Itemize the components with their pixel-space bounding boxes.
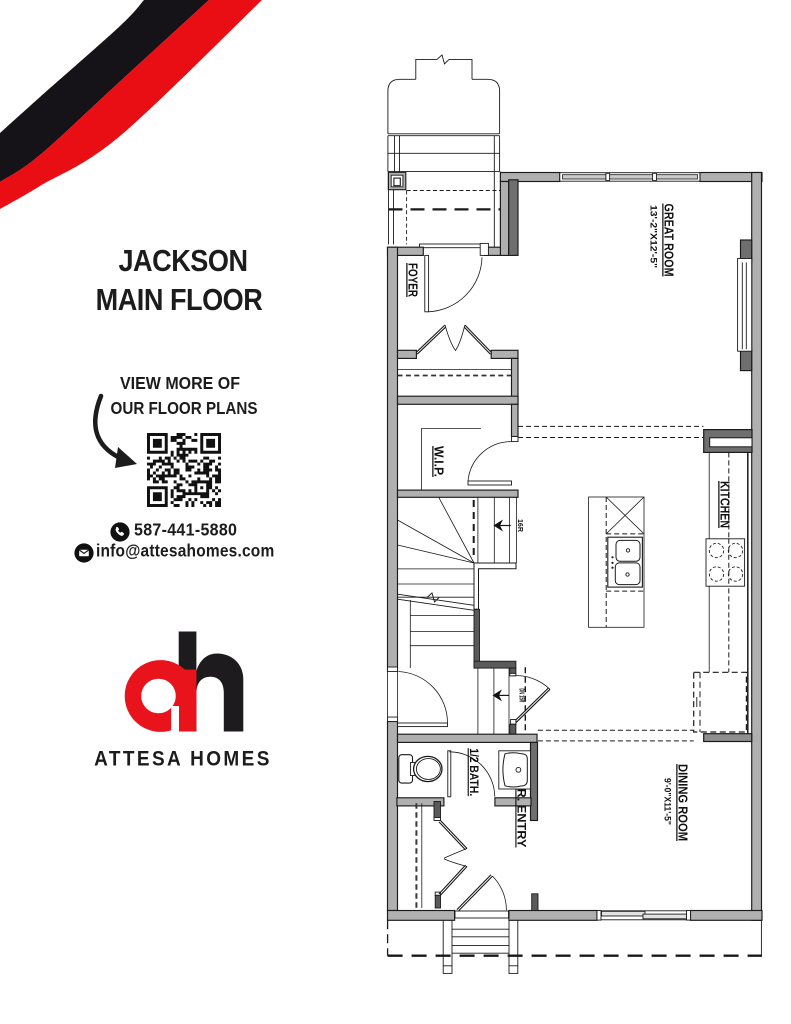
svg-text:DN 15R: DN 15R bbox=[517, 688, 524, 702]
svg-text:R. ENTRY: R. ENTRY bbox=[515, 789, 527, 848]
svg-text:16R: 16R bbox=[516, 519, 523, 532]
svg-text:9'-0"X11'-5": 9'-0"X11'-5" bbox=[662, 778, 673, 825]
svg-text:1/2 BATH.: 1/2 BATH. bbox=[467, 748, 479, 796]
svg-text:13'-2"X12'-5": 13'-2"X12'-5" bbox=[648, 205, 659, 268]
svg-text:W.I.P.: W.I.P. bbox=[432, 446, 446, 477]
svg-text:FOYER: FOYER bbox=[406, 263, 420, 297]
svg-text:DINING ROOM: DINING ROOM bbox=[676, 764, 690, 841]
svg-text:GREAT ROOM: GREAT ROOM bbox=[662, 204, 676, 277]
svg-text:KITCHEN: KITCHEN bbox=[718, 481, 732, 528]
